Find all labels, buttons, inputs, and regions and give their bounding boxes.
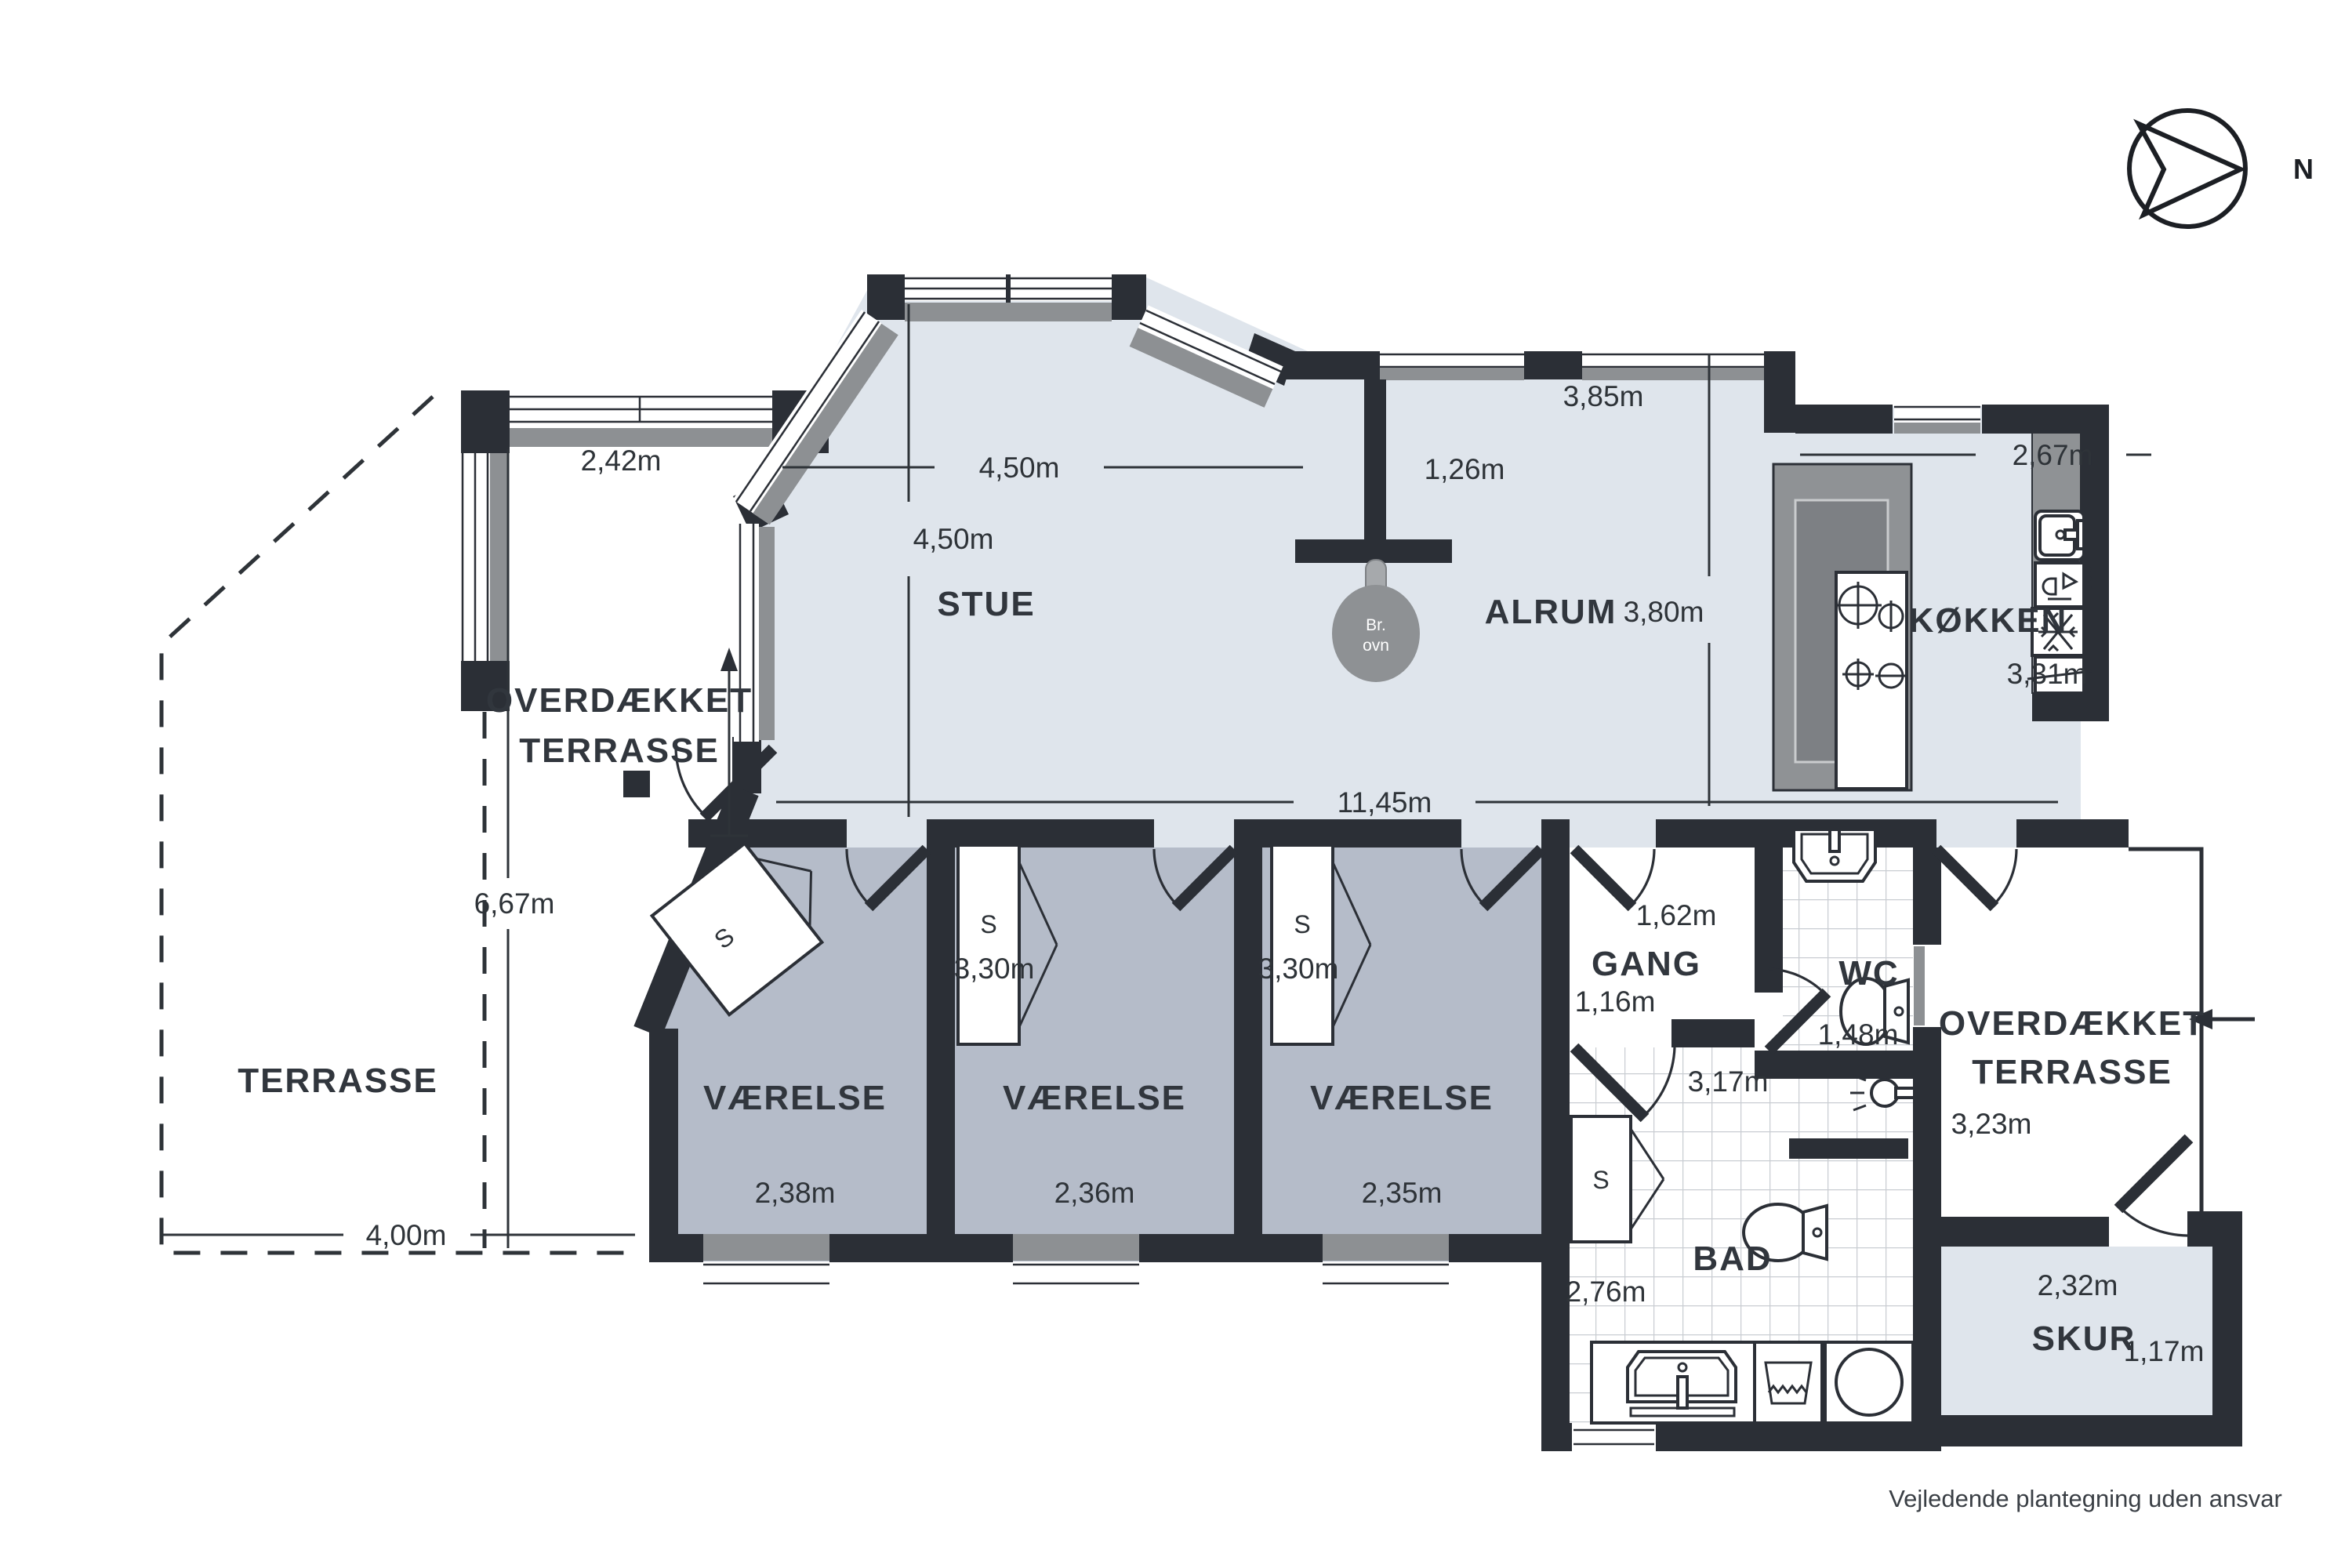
dim-bad-height: 2,76m <box>1566 1276 1646 1308</box>
floor-plan-page: Br. ovn S S S S <box>0 0 2352 1568</box>
dim-vaerelse3-depth: 3,30m <box>1258 953 1339 985</box>
dim-vaerelse1-width: 2,38m <box>755 1177 836 1209</box>
room-label-overdaekket-left-2: TERRASSE <box>519 731 720 770</box>
entry-door-glazing <box>1573 1430 1654 1444</box>
footer-disclaimer: Vejledende plantegning uden ansvar <box>1889 1485 2282 1512</box>
terrace-post <box>461 390 510 453</box>
room-label-stue: STUE <box>937 585 1035 623</box>
dim-terrasse-width: 4,00m <box>366 1219 447 1251</box>
terrace-post <box>623 771 650 797</box>
dim-alrum-width: 3,85m <box>1563 380 1644 412</box>
door-gang <box>1574 849 1654 907</box>
svg-text:S: S <box>1294 910 1310 938</box>
svg-text:S: S <box>1592 1166 1609 1194</box>
dishwasher-icon <box>2035 563 2092 607</box>
window <box>703 1247 829 1283</box>
room-label-vaerelse1: VÆRELSE <box>703 1079 887 1117</box>
room-label-skur: SKUR <box>2032 1319 2136 1358</box>
north-compass-icon: N <box>2129 111 2314 227</box>
room-label-bad: BAD <box>1693 1240 1772 1278</box>
room-label-wc: WC <box>1838 954 1899 993</box>
dim-skur-width: 2,32m <box>2038 1269 2118 1301</box>
dim-bad-width: 3,17m <box>1688 1065 1769 1098</box>
dim-gang-opening: 1,16m <box>1575 985 1656 1018</box>
north-label: N <box>2293 153 2314 185</box>
dim-stub-length: 1,26m <box>1425 453 1505 485</box>
dim-terrace-top-width: 2,42m <box>581 445 662 477</box>
dim-kokken-depth: 3,31m <box>2007 658 2088 690</box>
wc-sink-icon <box>1794 829 1875 881</box>
room-label-overdaekket-right-1: OVERDÆKKET <box>1939 1004 2205 1043</box>
terrasse-dashed-outline <box>162 397 637 1253</box>
kitchen-island <box>1773 464 1911 790</box>
window <box>1894 407 1980 428</box>
kitchen-sink-icon <box>2035 511 2085 560</box>
room-label-overdaekket-right-2: TERRASSE <box>1972 1053 2172 1091</box>
dim-vaerelse3-width: 2,35m <box>1362 1177 1443 1209</box>
dim-house-width: 11,45m <box>1338 786 1432 818</box>
stove-icon <box>1835 572 1907 789</box>
bathroom-counter <box>1592 1342 1913 1423</box>
dim-gang-width: 1,62m <box>1636 899 1717 931</box>
washing-machine-icon <box>1825 1342 1913 1423</box>
room-label-vaerelse3: VÆRELSE <box>1310 1079 1494 1117</box>
dim-kokken-top-width: 2,67m <box>2013 439 2093 471</box>
stove-label-line1: Br. <box>1366 616 1386 634</box>
dim-terrace-right-height: 3,23m <box>1951 1108 2032 1140</box>
room-label-kokken: KØKKEN <box>1909 601 2068 640</box>
room-label-alrum: ALRUM <box>1485 593 1617 631</box>
laundry-basin-icon <box>1755 1342 1822 1423</box>
window <box>905 274 1112 312</box>
window <box>1323 1247 1449 1283</box>
window <box>1919 946 1930 1025</box>
dim-wc-width: 1,48m <box>1818 1018 1899 1051</box>
dim-stue-width: 4,50m <box>979 452 1060 484</box>
dim-terrace-left-height: 6,67m <box>474 887 555 920</box>
dim-alrum-depth: 3,80m <box>1624 596 1704 628</box>
room-label-terrasse: TERRASSE <box>238 1062 438 1100</box>
svg-text:S: S <box>980 910 996 938</box>
room-label-gang: GANG <box>1592 945 1701 983</box>
dim-vaerelse2-width: 2,36m <box>1054 1177 1135 1209</box>
dim-vaerelse2-depth: 3,30m <box>954 953 1035 985</box>
stove-label-line2: ovn <box>1363 637 1389 655</box>
dim-stue-depth: 4,50m <box>913 523 994 555</box>
floor-plan-drawing: Br. ovn S S S S <box>0 0 2352 1568</box>
window <box>1013 1247 1139 1283</box>
room-label-overdaekket-left-1: OVERDÆKKET <box>486 681 753 720</box>
room-label-vaerelse2: VÆRELSE <box>1003 1079 1186 1117</box>
